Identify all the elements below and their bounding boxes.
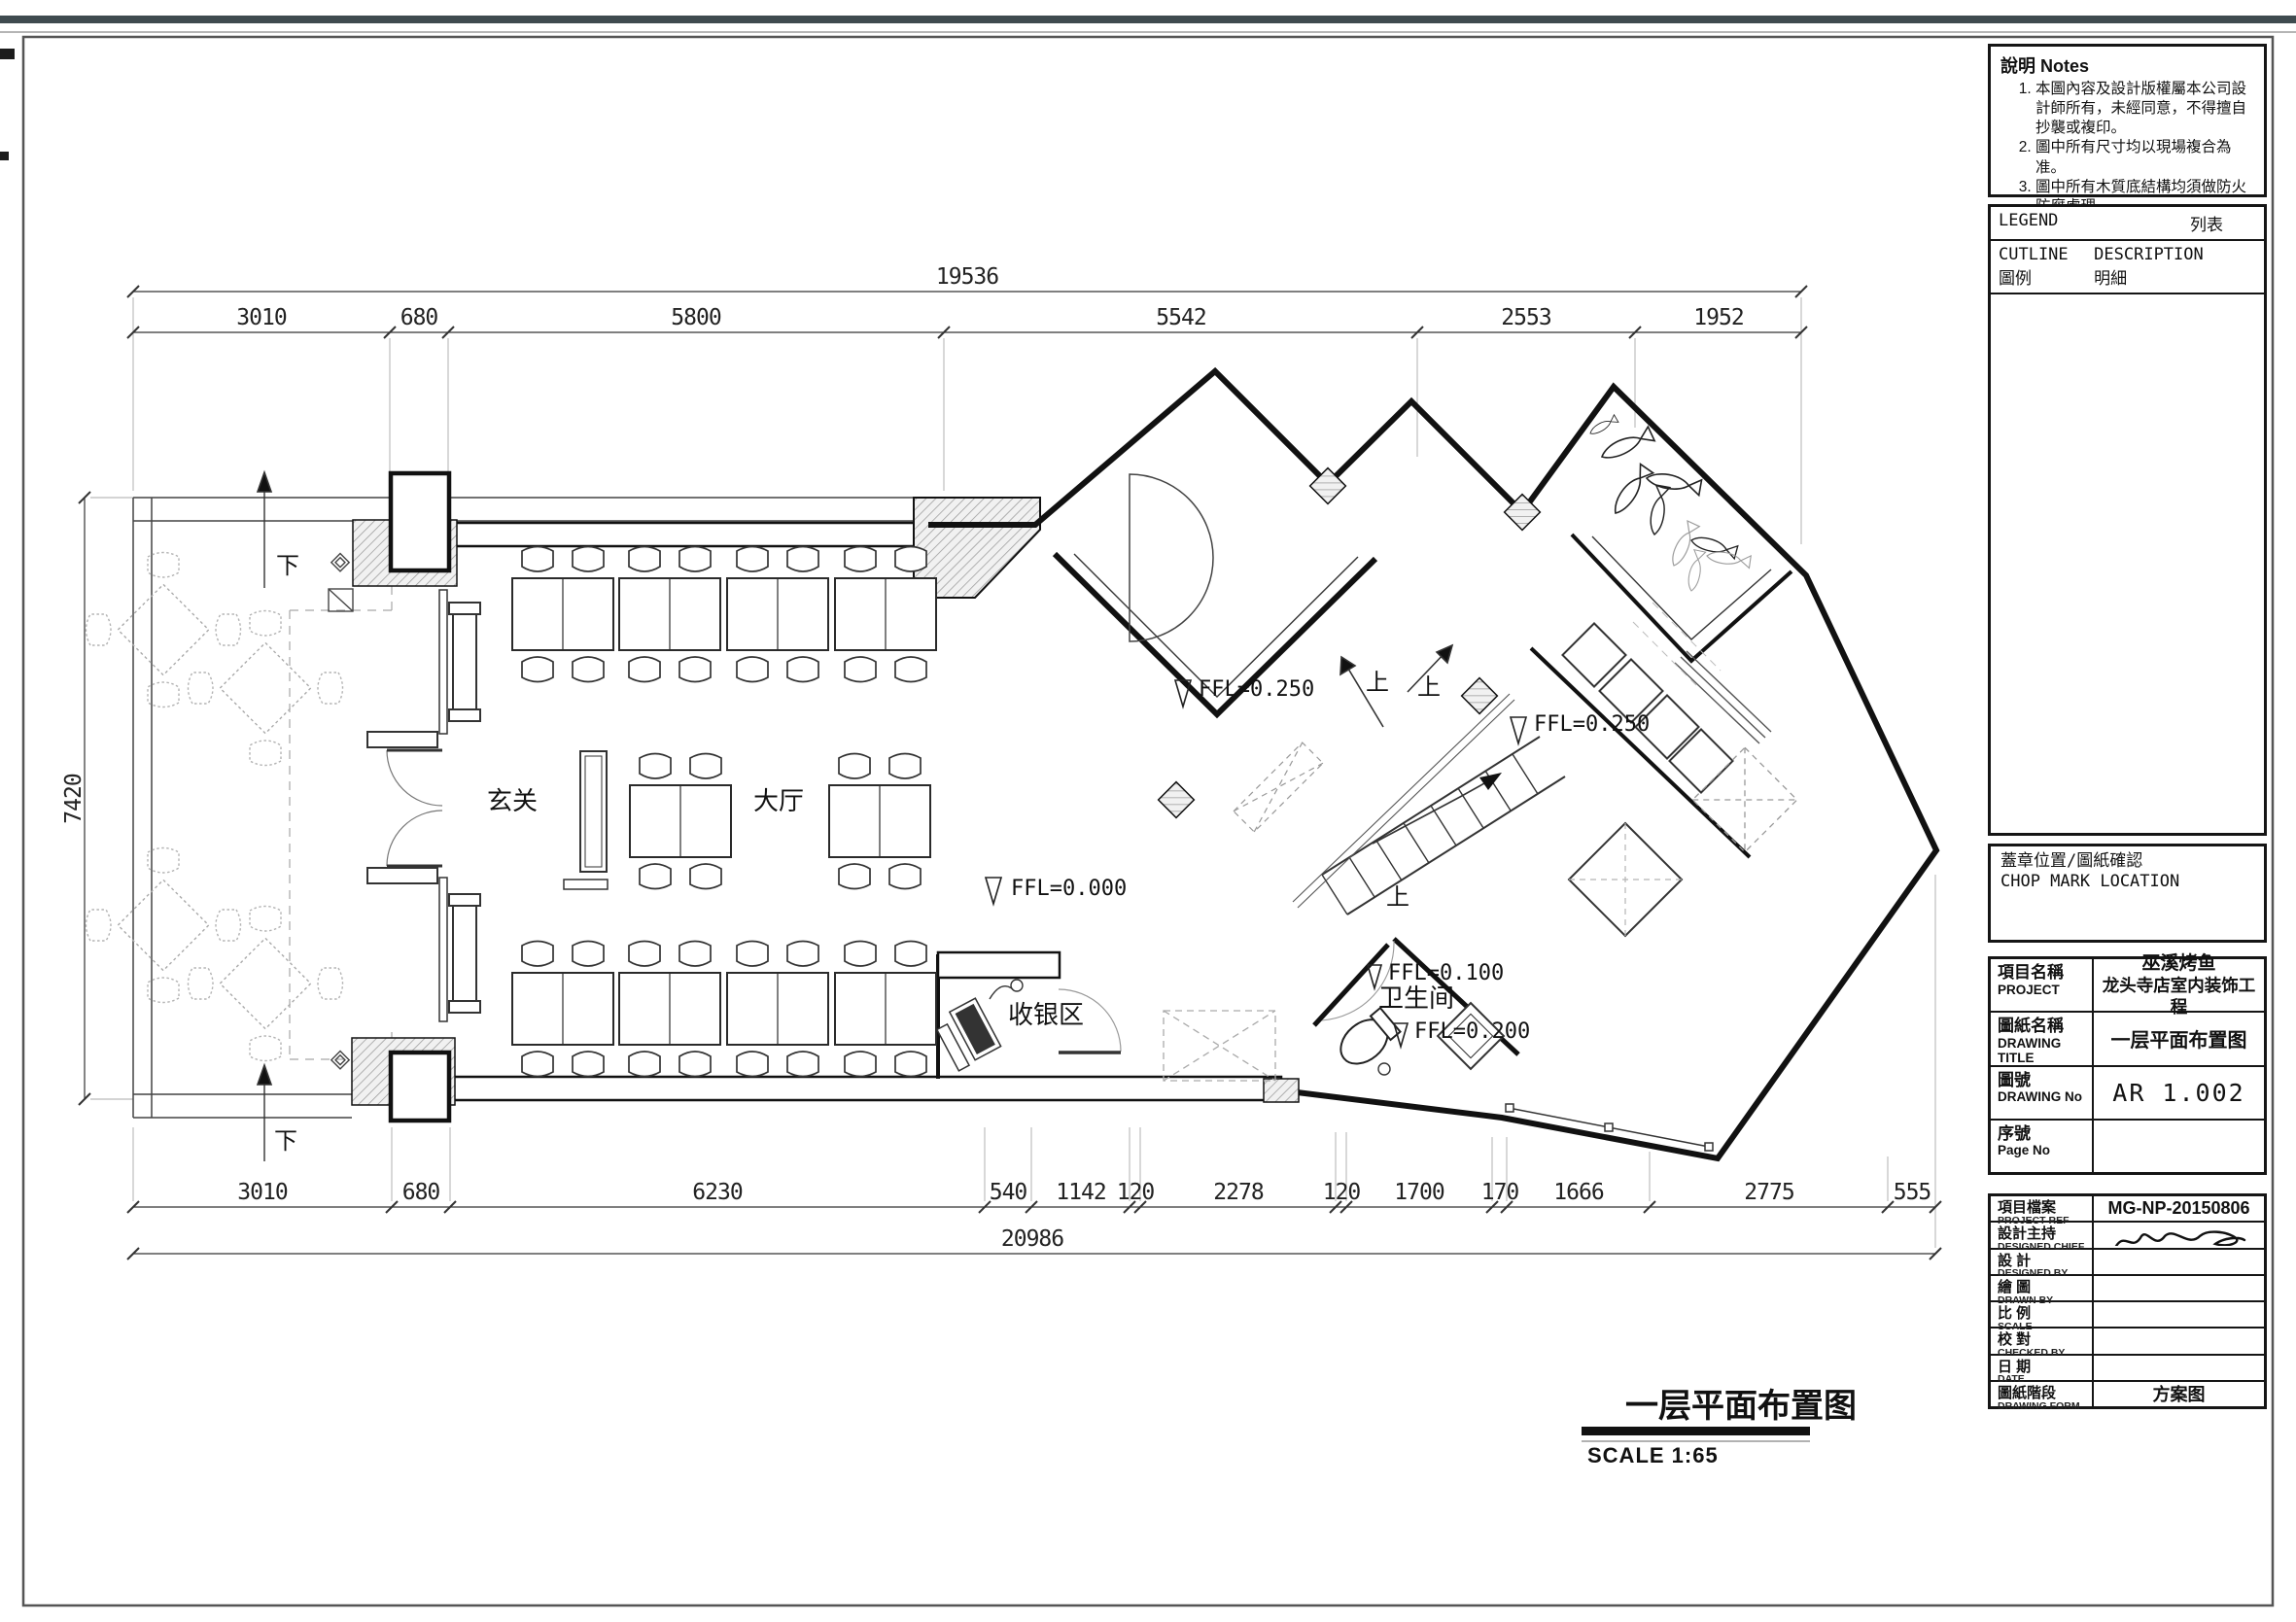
- svg-text:7420: 7420: [61, 774, 87, 824]
- svg-text:2775: 2775: [1744, 1180, 1793, 1205]
- staircase: [1293, 694, 1565, 915]
- outdoor-seating: [87, 553, 343, 1061]
- scale-row: 比 例 SCALE: [1991, 1302, 2264, 1329]
- project-title-block: 項目名稱 PROJECT 巫溪烤鱼 龙头寺店室内装饰工程 圖紙名稱 DRAWIN…: [1988, 956, 2267, 1175]
- svg-text:2553: 2553: [1501, 305, 1551, 330]
- legend-columns: CUTLINE 圖例DESCRIPTION 明細: [1991, 241, 2264, 294]
- drawing-form-value: 方案图: [2153, 1381, 2206, 1406]
- svg-text:1666: 1666: [1553, 1180, 1604, 1205]
- plan-title-block: 一层平面布置图 SCALE 1:65: [1582, 1388, 1857, 1467]
- pos-terminal: [932, 998, 1001, 1071]
- dining-table-cluster: [727, 942, 828, 1077]
- entry-screen: [564, 751, 608, 889]
- svg-text:555: 555: [1894, 1180, 1931, 1205]
- svg-text:680: 680: [400, 305, 438, 330]
- dining-table-cluster: [619, 547, 720, 682]
- svg-text:FFL=0.250: FFL=0.250: [1534, 712, 1650, 737]
- date-row: 日 期 DATE: [1991, 1356, 2264, 1382]
- drawing-title-row: 圖紙名稱 DRAWING TITLE 一层平面布置图: [1991, 1013, 2264, 1066]
- down-label: 下: [276, 553, 299, 579]
- up-label: 上: [1386, 884, 1409, 911]
- svg-text:FFL=0.000: FFL=0.000: [1011, 877, 1127, 901]
- note-item: 圖中所有尺寸均以現場複合為准。: [2035, 138, 2256, 177]
- entry-doors: [367, 590, 480, 1021]
- corner-room-table: [1569, 823, 1682, 936]
- up-label: 上: [1417, 674, 1441, 701]
- svg-text:170: 170: [1481, 1180, 1519, 1205]
- drawing-no-row: 圖號 DRAWING No AR 1.002: [1991, 1067, 2264, 1121]
- misc-symbols: [329, 554, 353, 1069]
- svg-text:5800: 5800: [671, 305, 721, 330]
- note-item: 本圖內容及設計版權屬本公司設計師所有，未經同意，不得擅自抄襲或複印。: [2035, 80, 2256, 138]
- notes-box: 說明 Notes 本圖內容及設計版權屬本公司設計師所有，未經同意，不得擅自抄襲或…: [1988, 44, 2267, 197]
- chop-mark-box: 蓋章位置/圖紙確認 CHOP MARK LOCATION: [1988, 844, 2267, 943]
- dining-table-cluster: [727, 547, 828, 682]
- project-ref-value: MG-NP-20150806: [2107, 1198, 2249, 1219]
- drawing-no-value: AR 1.002: [2112, 1079, 2244, 1107]
- svg-text:3010: 3010: [237, 1180, 288, 1205]
- level-labels: FFL=0.000 FFL=0.250 FFL=0.250 FFL=0.100 …: [1011, 677, 1650, 1044]
- chief-signature: [2106, 1225, 2252, 1245]
- designed-by-row: 設 計 DESIGNED BY: [1991, 1250, 2264, 1276]
- svg-text:19536: 19536: [936, 264, 998, 290]
- dining-table-cluster: [835, 547, 936, 682]
- project-row: 項目名稱 PROJECT 巫溪烤鱼 龙头寺店室内装饰工程: [1991, 959, 2264, 1013]
- svg-text:1142: 1142: [1056, 1180, 1105, 1205]
- plan-title: 一层平面布置图: [1625, 1388, 1857, 1425]
- ref-title-block: 項目檔案 PROJECT REF MG-NP-20150806 設計主持 DES…: [1988, 1193, 2267, 1409]
- project-name: 巫溪烤鱼: [2141, 952, 2215, 976]
- dimension-texts: 19536 3010 680 5800 5542 2553 1952 7420 …: [61, 264, 1931, 1252]
- svg-text:120: 120: [1323, 1180, 1361, 1205]
- window-bench: [367, 603, 480, 1013]
- svg-text:FFL=0.250: FFL=0.250: [1199, 677, 1314, 702]
- bar-counter-dashed: [1164, 1011, 1275, 1081]
- up-label: 上: [1366, 670, 1389, 696]
- svg-text:3010: 3010: [236, 305, 287, 330]
- down-label: 下: [274, 1128, 297, 1155]
- door-swing: [387, 750, 442, 866]
- legend-header: LEGEND列表: [1991, 207, 2264, 241]
- floor-plan-canvas: 19536 3010 680 5800 5542 2553 1952 7420 …: [0, 0, 2296, 1622]
- window-wall: [1506, 1104, 1713, 1151]
- designed-chief-row: 設計主持 DESIGNED CHIEF: [1991, 1223, 2264, 1249]
- svg-text:FFL=0.100: FFL=0.100: [1388, 961, 1504, 985]
- svg-text:540: 540: [990, 1180, 1027, 1205]
- drawing-form-row: 圖紙階段 DRAWING FORM 方案图: [1991, 1382, 2264, 1406]
- cashier-label: 收银区: [1008, 1000, 1084, 1029]
- svg-text:680: 680: [402, 1180, 440, 1205]
- project-ref-row: 項目檔案 PROJECT REF MG-NP-20150806: [1991, 1196, 2264, 1223]
- svg-text:5542: 5542: [1156, 305, 1205, 330]
- notes-title: 說明 Notes: [2000, 52, 2256, 78]
- dining-table-cluster: [512, 547, 613, 682]
- hall-label: 大厅: [753, 786, 804, 815]
- svg-text:1952: 1952: [1693, 305, 1743, 330]
- dining-table-cluster: [829, 754, 930, 889]
- svg-text:2278: 2278: [1213, 1180, 1264, 1205]
- dining-table-cluster: [512, 942, 613, 1077]
- chop-line-en: CHOP MARK LOCATION: [2000, 872, 2254, 892]
- checked-by-row: 校 對 CHECKED BY: [1991, 1329, 2264, 1355]
- svg-text:1700: 1700: [1394, 1180, 1444, 1205]
- svg-text:120: 120: [1117, 1180, 1155, 1205]
- dining-table-cluster: [835, 942, 936, 1077]
- svg-text:20986: 20986: [1001, 1226, 1063, 1252]
- page-no-row: 序號 Page No: [1991, 1121, 2264, 1172]
- wc-label: 卫生间: [1378, 984, 1454, 1013]
- scale-label: SCALE 1:65: [1587, 1443, 1719, 1467]
- dining-table-cluster: [630, 754, 731, 889]
- sheet-frame: [0, 16, 2296, 1605]
- entry-label: 玄关: [487, 786, 538, 815]
- legend-box: LEGEND列表 CUTLINE 圖例DESCRIPTION 明細: [1988, 204, 2267, 836]
- dining-tables: [512, 547, 936, 1077]
- handrail: [1293, 694, 1514, 908]
- drawing-title-value: 一层平面布置图: [2111, 1024, 2247, 1053]
- drawing-sheet: 19536 3010 680 5800 5542 2553 1952 7420 …: [0, 0, 2296, 1622]
- svg-text:FFL=0.200: FFL=0.200: [1414, 1019, 1530, 1044]
- dining-table-cluster: [619, 942, 720, 1077]
- kitchen-equipment: [1562, 623, 1796, 851]
- drawn-by-row: 繪 圖 DRAWN BY: [1991, 1276, 2264, 1302]
- svg-text:6230: 6230: [692, 1180, 743, 1205]
- chop-line-zh: 蓋章位置/圖紙確認: [2000, 851, 2254, 872]
